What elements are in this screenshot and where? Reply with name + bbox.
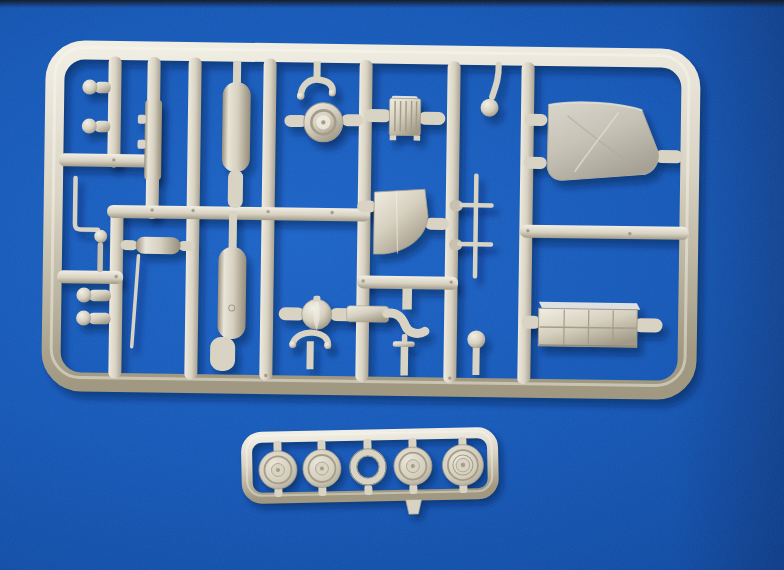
canvas-tilt-gate-r xyxy=(655,150,683,163)
cargo-panel-vline-3 xyxy=(613,310,614,346)
left-rail-a xyxy=(59,153,154,167)
axle-mast-crossbar-1-shadow xyxy=(464,210,499,215)
fuel-tank-part-upper-gate-t xyxy=(233,61,241,84)
radiator-foot-r-shadow xyxy=(419,143,426,148)
ball-knob-bottom-stem xyxy=(472,348,479,375)
bent-lever-gate xyxy=(97,242,103,272)
control-yoke-bottom-gate xyxy=(306,341,313,369)
axle-mast-crossbar-1 xyxy=(459,203,494,208)
center-rail xyxy=(357,275,458,289)
left-upper-bar xyxy=(107,56,122,167)
canvas-tilt-gate-l1 xyxy=(524,114,547,126)
fuel-tank-part-lower-gate-t xyxy=(229,211,238,249)
seat-back-gate-r xyxy=(425,218,449,230)
small-cylinder-gate-r xyxy=(179,241,195,251)
gauge-dial-gate-r xyxy=(341,114,363,126)
seat-back-gate-l xyxy=(357,200,376,212)
channel-part xyxy=(144,100,162,180)
channel-part-tab-2 xyxy=(137,140,145,149)
valve-part-gate xyxy=(400,344,408,375)
fuel-tank-part-upper-gate-b xyxy=(228,170,244,208)
cargo-panel-gate-r xyxy=(633,318,662,332)
small-cylinder-gate-l xyxy=(121,240,138,250)
right-mid-rail xyxy=(520,225,689,240)
cargo-panel-vline-1 xyxy=(564,310,565,346)
hub-sphere-gate-l xyxy=(279,307,305,320)
photo-background xyxy=(0,0,784,570)
wheel-gate-b3 xyxy=(364,485,372,495)
cargo-panel-gate-l xyxy=(521,316,540,329)
scene-svg xyxy=(0,0,784,570)
fuel-tank-part-lower xyxy=(217,247,246,339)
radiator-foot-l xyxy=(390,135,397,140)
radiator-foot-r xyxy=(414,136,421,141)
fuel-tank-part-lower-gate-b xyxy=(210,337,235,371)
left-rail-b xyxy=(57,270,123,284)
axle-mast-crossbar-2-shadow xyxy=(462,249,498,254)
wheel-gate-b4 xyxy=(409,484,417,494)
canvas-tilt-part xyxy=(547,102,659,182)
fuel-tank-part-upper xyxy=(222,82,251,172)
cargo-panel-vline-2 xyxy=(588,310,589,346)
ball-pin-part-4-stem xyxy=(89,313,111,325)
valve-part-tip xyxy=(402,334,408,343)
hub-sphere-nub xyxy=(313,296,320,302)
axle-mast-crossbar-2 xyxy=(457,242,493,247)
ball-pin-part-3-stem xyxy=(89,290,111,302)
radiator-foot-l-shadow xyxy=(395,142,402,147)
radiator-gate-l xyxy=(364,109,391,122)
radiator-gate-r xyxy=(418,112,445,125)
canvas-tilt-gate-l2 xyxy=(524,157,547,169)
channel-part-tab-1 xyxy=(138,115,146,124)
small-cylinder-part xyxy=(136,237,181,255)
bracket-gate-t xyxy=(402,288,412,309)
